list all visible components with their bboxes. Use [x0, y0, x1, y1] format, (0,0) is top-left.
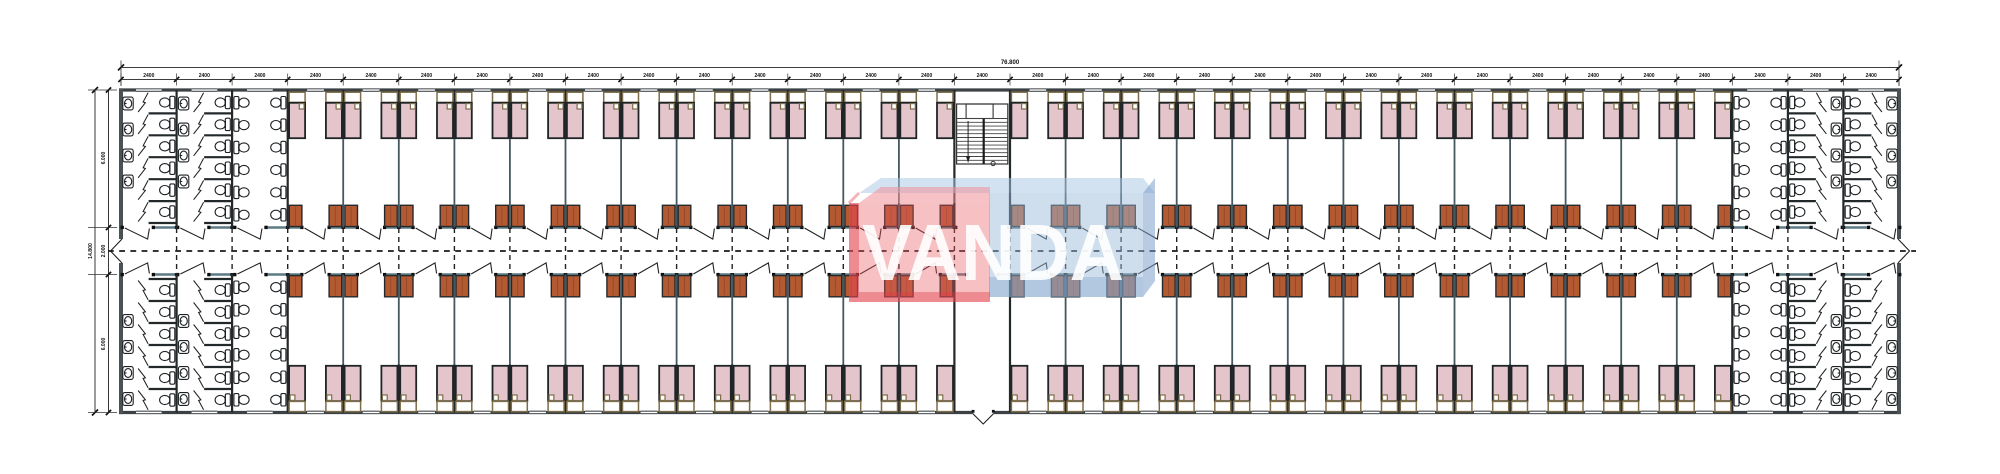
svg-text:2400: 2400 [1088, 73, 1099, 79]
svg-text:2400: 2400 [588, 73, 599, 79]
svg-text:2400: 2400 [199, 73, 210, 79]
svg-text:6.000: 6.000 [101, 338, 107, 351]
svg-text:76.800: 76.800 [1001, 60, 1020, 66]
svg-text:2400: 2400 [977, 73, 988, 79]
svg-text:2400: 2400 [1143, 73, 1154, 79]
svg-text:2400: 2400 [1643, 73, 1654, 79]
svg-text:2400: 2400 [1032, 73, 1043, 79]
svg-text:2400: 2400 [699, 73, 710, 79]
svg-text:VANDA: VANDA [862, 208, 1124, 297]
svg-text:2400: 2400 [1699, 73, 1710, 79]
svg-text:2.000: 2.000 [101, 245, 107, 258]
svg-text:2400: 2400 [477, 73, 488, 79]
svg-text:2400: 2400 [643, 73, 654, 79]
svg-text:2400: 2400 [921, 73, 932, 79]
svg-text:2400: 2400 [254, 73, 265, 79]
svg-text:2400: 2400 [1477, 73, 1488, 79]
svg-text:2400: 2400 [1532, 73, 1543, 79]
svg-text:2400: 2400 [1366, 73, 1377, 79]
svg-text:2400: 2400 [421, 73, 432, 79]
svg-text:2400: 2400 [143, 73, 154, 79]
svg-text:2400: 2400 [754, 73, 765, 79]
svg-text:2400: 2400 [1310, 73, 1321, 79]
svg-text:2400: 2400 [1810, 73, 1821, 79]
svg-text:2400: 2400 [310, 73, 321, 79]
svg-text:2400: 2400 [810, 73, 821, 79]
svg-text:2400: 2400 [1866, 73, 1877, 79]
svg-text:6.000: 6.000 [101, 152, 107, 165]
svg-text:2400: 2400 [1421, 73, 1432, 79]
svg-text:2400: 2400 [1199, 73, 1210, 79]
svg-text:2400: 2400 [1254, 73, 1265, 79]
svg-text:2400: 2400 [532, 73, 543, 79]
svg-text:2400: 2400 [1755, 73, 1766, 79]
svg-text:2400: 2400 [1588, 73, 1599, 79]
svg-text:2400: 2400 [866, 73, 877, 79]
svg-text:14.800: 14.800 [88, 243, 94, 259]
svg-text:2400: 2400 [365, 73, 376, 79]
